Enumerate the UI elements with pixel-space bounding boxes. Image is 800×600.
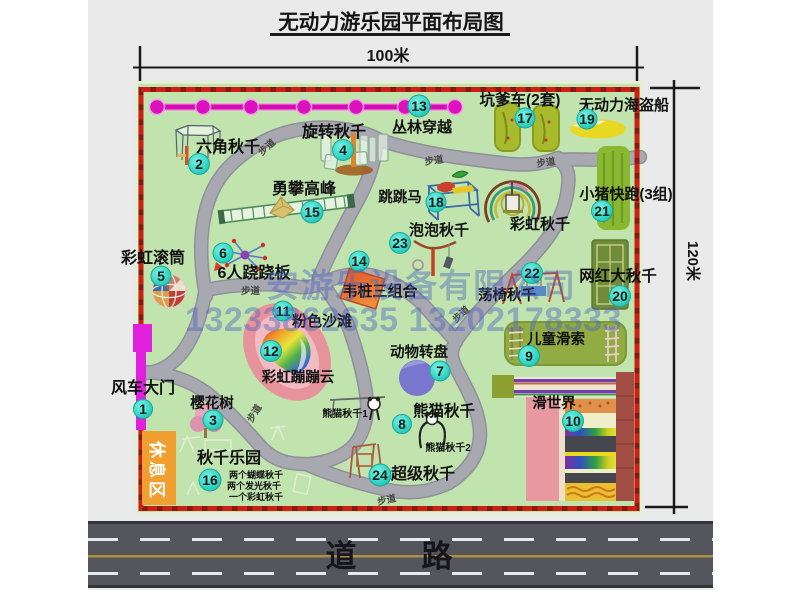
svg-text:17: 17 bbox=[517, 110, 533, 126]
svg-text:动物转盘: 动物转盘 bbox=[390, 343, 448, 361]
svg-text:13: 13 bbox=[411, 98, 427, 114]
svg-text:19: 19 bbox=[579, 111, 595, 127]
svg-text:23: 23 bbox=[392, 235, 408, 251]
svg-text:超级秋千: 超级秋千 bbox=[390, 464, 455, 483]
svg-text:滑世界: 滑世界 bbox=[532, 394, 576, 412]
svg-text:无动力游乐园平面布局图: 无动力游乐园平面布局图 bbox=[278, 10, 504, 34]
svg-text:秋千乐园: 秋千乐园 bbox=[197, 448, 261, 467]
svg-text:路: 路 bbox=[422, 539, 454, 574]
svg-text:勇攀高峰: 勇攀高峰 bbox=[272, 179, 337, 198]
svg-text:24: 24 bbox=[372, 467, 388, 483]
svg-text:休息区: 休息区 bbox=[147, 440, 167, 501]
svg-text:彩虹蹦蹦云: 彩虹蹦蹦云 bbox=[261, 368, 335, 386]
svg-text:21: 21 bbox=[594, 203, 610, 219]
svg-text:步道: 步道 bbox=[241, 285, 261, 297]
svg-text:彩虹滚筒: 彩虹滚筒 bbox=[120, 248, 185, 267]
svg-text:网红大秋千: 网红大秋千 bbox=[579, 266, 657, 285]
svg-text:13233862635 13202178333: 13233862635 13202178333 bbox=[185, 301, 622, 339]
svg-text:3: 3 bbox=[209, 412, 217, 428]
svg-text:樱花树: 樱花树 bbox=[190, 394, 234, 412]
svg-text:两个发光秋千: 两个发光秋千 bbox=[227, 480, 281, 491]
svg-text:4: 4 bbox=[339, 142, 347, 158]
svg-text:旋转秋千: 旋转秋千 bbox=[301, 122, 366, 141]
svg-text:安游乐设备有限公司: 安游乐设备有限公司 bbox=[266, 267, 577, 304]
svg-text:2: 2 bbox=[195, 156, 203, 172]
svg-text:小猪快跑(3组): 小猪快跑(3组) bbox=[579, 185, 672, 203]
svg-text:丛林穿越: 丛林穿越 bbox=[392, 118, 453, 136]
svg-text:彩虹秋千: 彩虹秋千 bbox=[509, 215, 570, 233]
svg-text:6: 6 bbox=[219, 245, 227, 261]
svg-text:9: 9 bbox=[525, 348, 533, 364]
svg-text:5: 5 bbox=[157, 268, 165, 284]
svg-text:100米: 100米 bbox=[367, 46, 411, 65]
svg-text:7: 7 bbox=[436, 363, 444, 379]
svg-text:10: 10 bbox=[565, 413, 581, 429]
svg-text:18: 18 bbox=[428, 194, 444, 210]
svg-text:15: 15 bbox=[304, 204, 320, 220]
svg-text:泡泡秋千: 泡泡秋千 bbox=[409, 221, 469, 239]
svg-text:8: 8 bbox=[398, 416, 406, 432]
svg-text:六角秋千: 六角秋千 bbox=[196, 137, 260, 156]
svg-text:道: 道 bbox=[326, 539, 357, 574]
svg-text:跳跳马: 跳跳马 bbox=[378, 188, 422, 206]
svg-text:两个蝴蝶秋千: 两个蝴蝶秋千 bbox=[229, 469, 283, 480]
svg-text:120米: 120米 bbox=[684, 241, 702, 282]
svg-text:风车大门: 风车大门 bbox=[111, 378, 175, 397]
svg-text:12: 12 bbox=[263, 343, 279, 359]
svg-text:熊猫秋千: 熊猫秋千 bbox=[413, 401, 476, 420]
svg-text:一个彩虹秋千: 一个彩虹秋千 bbox=[229, 491, 283, 502]
svg-text:熊猫秋千1: 熊猫秋千1 bbox=[322, 407, 368, 420]
svg-text:16: 16 bbox=[202, 472, 218, 488]
svg-text:1: 1 bbox=[139, 401, 147, 417]
svg-text:坑爹车(2套): 坑爹车(2套) bbox=[480, 90, 561, 109]
svg-text:熊猫秋千2: 熊猫秋千2 bbox=[425, 441, 471, 454]
